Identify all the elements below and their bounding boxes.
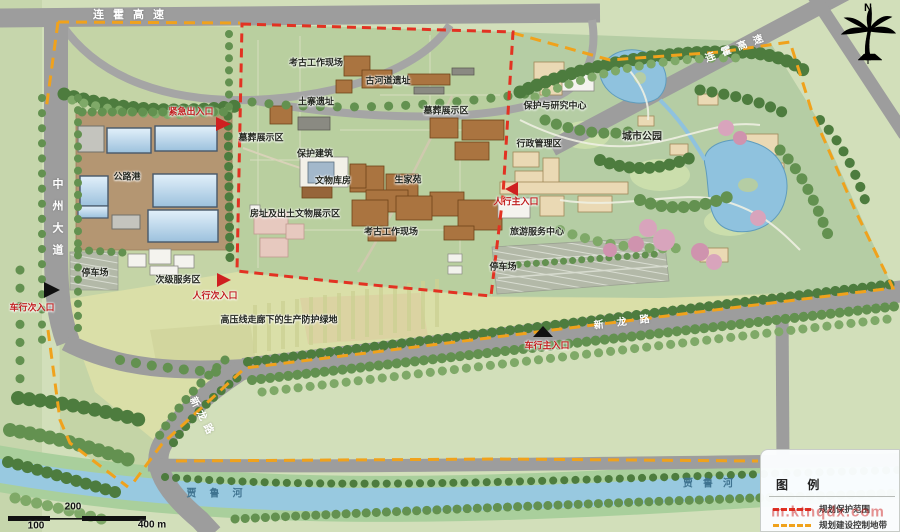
area-label-archaeology-site-top: 考古工作现场 [289, 56, 343, 69]
entrance-label-emergency: 紧急出入口 [168, 105, 213, 118]
area-label-ancient-river-channel: 古河道遗址 [365, 74, 410, 87]
area-label-parking-west: 停车场 [81, 266, 108, 279]
north-label: N [864, 2, 872, 14]
area-label-relics-storehouse: 文物库房 [315, 174, 351, 187]
river-label-jialu-west: 贾鲁河 [187, 485, 256, 500]
scale-label-100: 100 [28, 521, 45, 532]
entrance-label-pedestrian-main: 人行主入口 [493, 195, 538, 208]
yellow-dashed-line-swatch [773, 524, 811, 527]
road-label-lianhuo-expressway-top: 连霍高速 [93, 6, 173, 22]
area-label-earthen-fort-ruins: 土寨遗址 [298, 95, 334, 108]
entrance-label-pedestrian-secondary: 人行次入口 [192, 289, 237, 302]
entrance-label-vehicle-main: 车行主入口 [524, 339, 569, 352]
legend-item-label: 规划建设控制地带 [819, 519, 887, 531]
logistics-zone [76, 112, 232, 250]
area-label-tomb-exhibition-west: 墓葬展示区 [238, 131, 283, 144]
area-label-powerline-green-belt: 高压线走廊下的生产防护绿地 [220, 313, 337, 326]
area-label-tourist-service-center: 旅游服务中心 [510, 225, 564, 238]
area-label-highway-port: 公路港 [113, 170, 140, 183]
site-plan-map: 连霍高速 连霍高速 中州大道 新龙路 新龙路 贾鲁河 贾鲁河 公路港 停车场 次… [0, 0, 900, 532]
area-label-archaeology-site-bottom: 考古工作现场 [364, 225, 418, 238]
area-label-parking-east: 停车场 [489, 260, 516, 273]
legend-divider [769, 496, 895, 497]
scale-label-400m: 400 m [138, 520, 166, 531]
area-label-secondary-service-area: 次级服务区 [155, 273, 200, 286]
area-label-shengjiayuan: 生家苑 [394, 173, 421, 186]
area-label-house-relics-exhibition: 房址及出土文物展示区 [250, 207, 340, 220]
road-label-zhongzhou-avenue: 中州大道 [49, 178, 65, 266]
watermark: m.ktnqdx.com [771, 504, 885, 521]
area-label-tomb-exhibition-east: 墓葬展示区 [423, 104, 468, 117]
river-label-jialu-east: 贾鲁河 [683, 475, 743, 490]
entrance-label-vehicle-secondary: 车行次入口 [9, 301, 54, 314]
area-label-protection-research-center: 保护与研究中心 [523, 99, 586, 112]
area-label-protected-building: 保护建筑 [297, 147, 333, 160]
area-label-administration-zone: 行政管理区 [516, 137, 561, 150]
legend-title: 图 例 [776, 476, 827, 493]
scale-label-200: 200 [65, 502, 82, 513]
area-label-city-park: 城市公园 [622, 128, 662, 143]
